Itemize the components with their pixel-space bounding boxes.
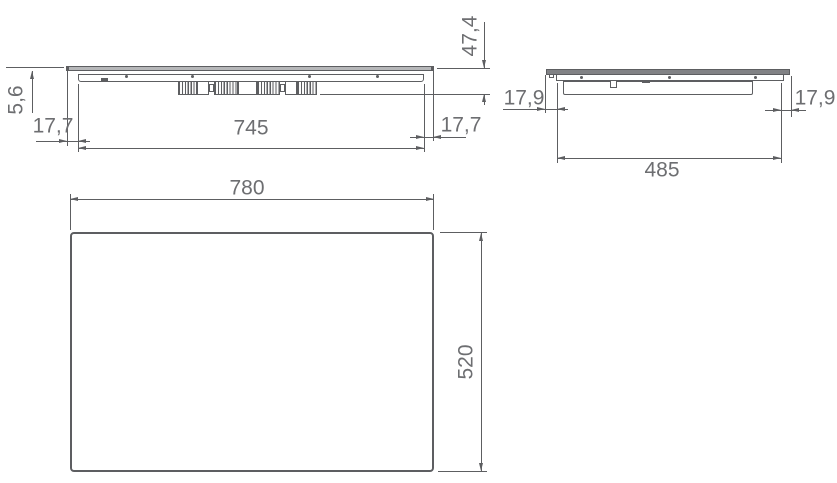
arrow-right-icon xyxy=(773,156,781,160)
extension-line xyxy=(557,83,558,163)
dim-label-glass-thickness: 5,6 xyxy=(6,85,27,114)
arrow-left-icon xyxy=(78,146,86,150)
screw-dot xyxy=(125,75,128,78)
screw-dot xyxy=(668,76,671,79)
extension-line xyxy=(6,67,64,68)
dim-label-body-depth: 485 xyxy=(644,160,679,181)
arrow-left-icon xyxy=(557,107,565,111)
arrow-right-icon xyxy=(416,135,424,139)
vent-box xyxy=(285,81,297,95)
screw-dot xyxy=(376,75,379,78)
arrow-right-icon xyxy=(773,108,781,112)
dim-label-depth: 520 xyxy=(456,344,477,379)
arrow-left-icon xyxy=(557,156,565,160)
dimension-drawing: 5,6 17,7 745 17,7 47,4 xyxy=(0,0,837,483)
screw-dot xyxy=(580,76,583,79)
arrow-down-icon xyxy=(479,463,483,471)
extension-line xyxy=(320,94,490,95)
arrow-right-icon xyxy=(416,146,424,150)
screw-dot xyxy=(308,75,311,78)
cooling-fin-block xyxy=(178,81,197,95)
dimension-line xyxy=(765,110,806,111)
dim-label-overhang-left: 17,9 xyxy=(504,88,545,109)
dim-label-overhang-left: 17,7 xyxy=(33,116,74,137)
dim-label-body-width: 745 xyxy=(233,118,268,139)
arrow-up-icon xyxy=(479,233,483,241)
arrow-right-icon xyxy=(59,139,67,143)
fin-bracket xyxy=(610,80,617,88)
extension-line xyxy=(545,75,546,113)
cooling-fin-block xyxy=(297,81,317,95)
cooling-fin-block xyxy=(257,81,280,95)
dimension-line xyxy=(78,148,424,149)
vent-box xyxy=(563,81,753,95)
extension-line xyxy=(781,83,782,163)
dimension-line xyxy=(481,233,482,471)
arrow-up-icon xyxy=(30,71,34,79)
glass-end-lip xyxy=(549,74,554,78)
dim-label-total-height: 47,4 xyxy=(460,16,481,57)
glass-outline xyxy=(70,232,434,472)
extension-line xyxy=(438,471,487,472)
fixing-tab xyxy=(101,78,108,81)
vent-box xyxy=(238,81,257,95)
extension-line xyxy=(433,71,434,141)
arrow-down-icon xyxy=(482,60,486,68)
cooling-fin-block xyxy=(214,81,238,95)
arrow-right-icon xyxy=(426,197,434,201)
arrow-left-icon xyxy=(70,197,78,201)
dim-label-overhang-right: 17,7 xyxy=(441,115,482,136)
screw-dot xyxy=(754,76,757,79)
arrow-left-icon xyxy=(78,139,86,143)
screw-dot xyxy=(191,75,194,78)
dim-label-width: 780 xyxy=(229,178,264,199)
dim-label-overhang-right: 17,9 xyxy=(795,88,836,109)
glass-profile xyxy=(66,66,434,71)
vent-box xyxy=(197,81,209,95)
arrow-up-icon xyxy=(482,94,486,102)
extension-line xyxy=(437,68,490,69)
fixing-tab xyxy=(642,81,650,83)
